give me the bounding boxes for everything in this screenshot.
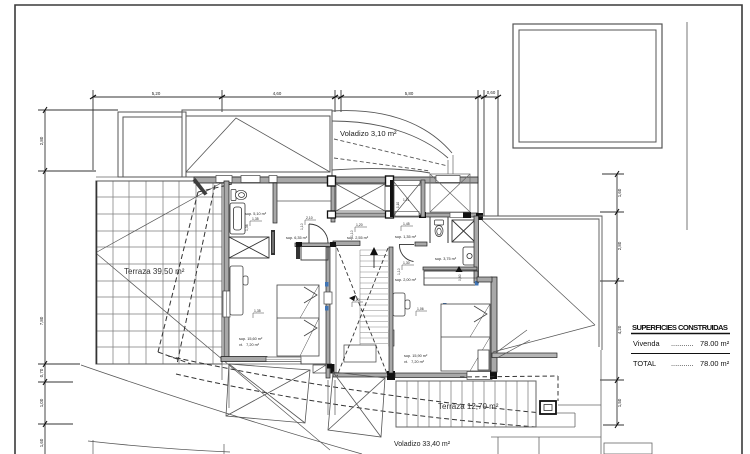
svg-text:SUPERFICIES CONSTRUIDAS: SUPERFICIES CONSTRUIDAS xyxy=(632,323,728,332)
svg-text:sup. 15,90 m²: sup. 15,90 m² xyxy=(404,354,428,358)
svg-text:78.00 m²: 78.00 m² xyxy=(700,359,730,368)
svg-text:Terraza 12,70 m²: Terraza 12,70 m² xyxy=(438,402,499,411)
svg-text:vt. 7,20 m²: vt. 7,20 m² xyxy=(239,343,260,347)
svg-text:2,10: 2,10 xyxy=(306,216,313,220)
svg-text:vt. 7,20 m²: vt. 7,20 m² xyxy=(404,360,425,364)
svg-text:7,80: 7,80 xyxy=(39,316,44,325)
svg-text:sup. 15,60 m²: sup. 15,60 m² xyxy=(239,337,263,341)
svg-text:2,80: 2,80 xyxy=(39,136,44,145)
svg-text:TOTAL: TOTAL xyxy=(633,359,656,368)
svg-text:78.00 m²: 78.00 m² xyxy=(700,339,730,348)
svg-text:0,70: 0,70 xyxy=(39,368,44,377)
svg-text:1,60: 1,60 xyxy=(39,438,44,447)
svg-text:4,60: 4,60 xyxy=(273,91,282,96)
svg-text:1,10: 1,10 xyxy=(350,230,354,237)
svg-text:1,50: 1,50 xyxy=(617,398,622,407)
svg-text:1,35: 1,35 xyxy=(252,217,259,221)
svg-text:...........: ........... xyxy=(671,359,694,368)
svg-text:1,60: 1,60 xyxy=(617,188,622,197)
svg-text:1,10: 1,10 xyxy=(353,298,360,302)
svg-text:5,20: 5,20 xyxy=(152,91,161,96)
svg-text:0,60: 0,60 xyxy=(487,90,496,95)
svg-text:sup. 5,10 m²: sup. 5,10 m² xyxy=(245,212,267,216)
svg-text:1,35: 1,35 xyxy=(254,309,261,313)
svg-text:Voladizo 33,40 m²: Voladizo 33,40 m² xyxy=(394,441,451,448)
svg-text:1,21: 1,21 xyxy=(403,198,409,202)
svg-text:Vivenda: Vivenda xyxy=(633,339,660,348)
svg-text:4,20: 4,20 xyxy=(617,325,622,334)
svg-text:1,10: 1,10 xyxy=(396,202,400,208)
svg-text:Voladizo 3,10 m²: Voladizo 3,10 m² xyxy=(340,129,397,138)
svg-text:1,10: 1,10 xyxy=(397,268,401,275)
svg-text:1,36: 1,36 xyxy=(245,224,249,231)
svg-text:0,60: 0,60 xyxy=(458,274,462,281)
svg-text:1,10: 1,10 xyxy=(300,223,304,230)
svg-text:sup. 6,35 m²: sup. 6,35 m² xyxy=(286,236,308,240)
svg-text:1,45: 1,45 xyxy=(403,222,410,226)
svg-text:sup. 1,35 m²: sup. 1,35 m² xyxy=(395,235,417,239)
svg-text:...........: ........... xyxy=(671,339,694,348)
svg-text:1,20: 1,20 xyxy=(356,223,363,227)
svg-text:1,00: 1,00 xyxy=(39,398,44,407)
svg-text:1,30: 1,30 xyxy=(403,261,410,265)
svg-text:1,06: 1,06 xyxy=(417,307,424,311)
svg-text:5,80: 5,80 xyxy=(405,91,414,96)
svg-text:Terraza 39,50 m²: Terraza 39,50 m² xyxy=(124,267,185,276)
svg-text:sup. 3,75 m²: sup. 3,75 m² xyxy=(435,257,457,261)
svg-text:2,80: 2,80 xyxy=(617,241,622,250)
svg-text:sup. 2,00 m²: sup. 2,00 m² xyxy=(395,278,417,282)
